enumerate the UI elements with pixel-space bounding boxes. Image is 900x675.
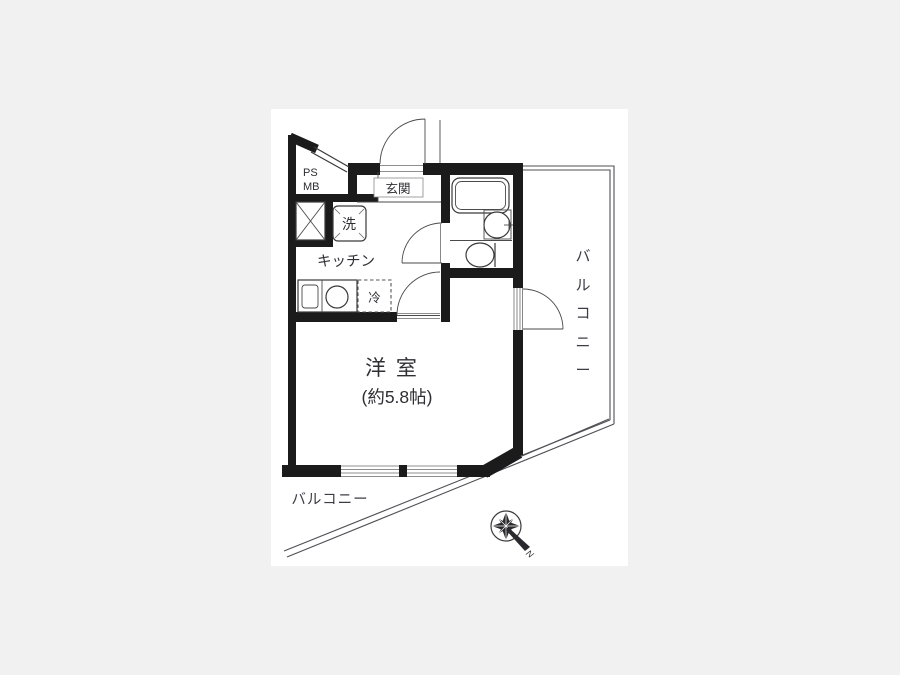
label-kitchen: キッチン — [317, 254, 375, 270]
label-washer: 洗 — [342, 216, 356, 232]
balcony-right-char-4: ニ — [575, 334, 590, 351]
wall-west — [288, 135, 296, 477]
wall-bath-bottom — [441, 268, 523, 278]
wall-south-left — [282, 465, 341, 477]
east-window-opening — [513, 288, 523, 330]
wall-east-upper — [513, 163, 523, 288]
wall-shaft-bottom — [288, 240, 333, 247]
balcony-right-char-3: コ — [575, 305, 590, 322]
label-ps: PS — [303, 167, 318, 179]
floor-plan-page: N PS MB 玄関 洗 キッチン 冷 洋 室 (約5.8帖) バルコニー バ … — [0, 0, 900, 675]
label-balcony-bottom: バルコニー — [291, 492, 368, 508]
wall-north-right — [423, 163, 523, 175]
wall-hall-bath-upper — [441, 175, 450, 223]
bathtub — [452, 178, 509, 213]
label-mb: MB — [303, 181, 320, 193]
label-entrance: 玄関 — [385, 181, 410, 196]
label-fridge: 冷 — [368, 291, 381, 305]
toilet-bowl — [466, 243, 494, 267]
floor-plan-drawing: N PS MB 玄関 洗 キッチン 冷 洋 室 (約5.8帖) バルコニー バ … — [0, 0, 900, 675]
wall-psmb-right — [348, 167, 357, 202]
east-window — [513, 288, 523, 330]
wall-shaft-right — [325, 194, 333, 247]
balcony-right-char-1: バ — [575, 248, 590, 265]
south-window — [341, 465, 457, 477]
wall-east-lower — [513, 330, 523, 455]
wall-kitchen-bottom — [290, 312, 397, 322]
balcony-right-char-5: ー — [575, 362, 590, 379]
label-room-size: (約5.8帖) — [362, 387, 433, 407]
balcony-right-char-2: ル — [575, 277, 590, 294]
south-window-mullion — [399, 465, 407, 477]
label-room-name: 洋 室 — [365, 357, 419, 380]
